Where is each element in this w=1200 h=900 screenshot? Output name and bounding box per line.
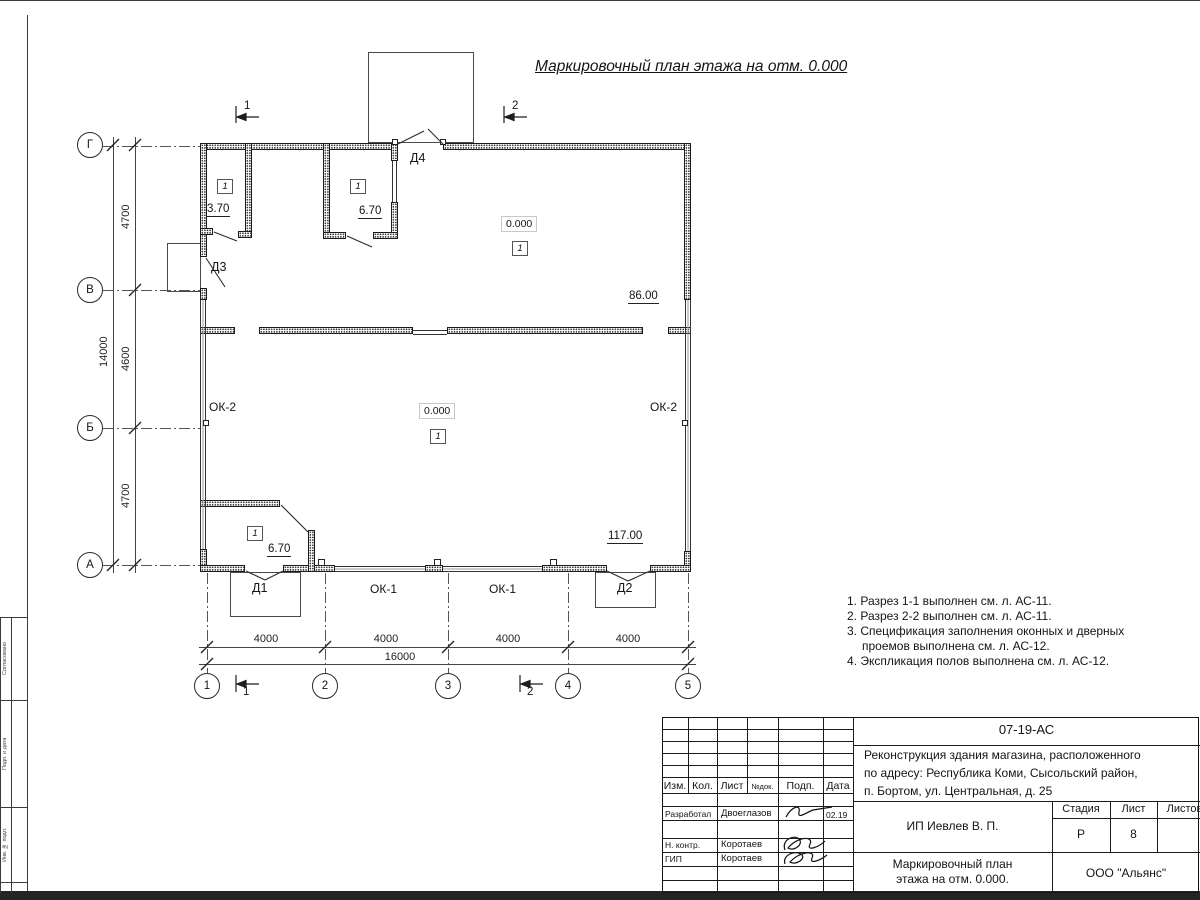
door-label-d2: Д2 — [617, 581, 632, 595]
dim-16000: 16000 — [375, 651, 425, 663]
sheets-label: Листов — [1157, 803, 1200, 815]
axis-line-1 — [207, 573, 208, 673]
stage-value: Р — [1052, 827, 1110, 841]
wall-left-upper — [200, 143, 207, 257]
note-item: 2. Разрез 2-2 выполнен см. л. АС-11. — [847, 609, 1147, 624]
row-ncontr-role: Н. контр. — [665, 840, 700, 850]
window-ok1-a — [335, 566, 425, 572]
jamb-tick — [434, 559, 441, 566]
notes-list: 1. Разрез 1-1 выполнен см. л. АС-11. 2. … — [847, 594, 1147, 669]
axis-line-5 — [688, 573, 689, 673]
wall-bottom-4 — [542, 565, 607, 572]
stage-label: Стадия — [1052, 803, 1110, 815]
jamb-tick — [440, 139, 446, 145]
axis-bubble-4: 4 — [555, 673, 581, 699]
titleblock-line — [662, 741, 853, 742]
dim-line-v-inner — [135, 137, 136, 573]
project-name-line3: п. Бортом, ул. Центральная, д. 25 — [864, 784, 1052, 798]
wall-room1-bottom-l — [200, 228, 213, 235]
project-name-line2: по адресу: Республика Коми, Сысольский р… — [864, 766, 1138, 780]
wall-mid-2 — [447, 327, 643, 334]
sheet-left-border — [27, 15, 28, 893]
axis-line-v — [103, 290, 200, 291]
col-list: Лист — [717, 780, 747, 792]
window-label-ok2-right: ОК-2 — [650, 400, 677, 414]
window-label-ok1-a: ОК-1 — [370, 582, 397, 596]
page-title: Маркировочный план этажа на отм. 0.000 — [535, 58, 840, 76]
axis-line-b — [103, 428, 200, 429]
axis-bubble-b: Б — [77, 415, 103, 441]
axis-bubble-2: 2 — [312, 673, 338, 699]
door-label-d1: Д1 — [252, 581, 267, 595]
titleblock-line — [662, 765, 853, 766]
wall-room1-right — [245, 143, 252, 238]
axis-bubble-a: А — [77, 552, 103, 578]
floor-type-mark: 1 — [217, 179, 233, 194]
window-label-ok2-left: ОК-2 — [209, 400, 236, 414]
dim-4700-bottom: 4700 — [120, 468, 132, 524]
col-ndok: №док. — [747, 782, 778, 791]
note-item: 4. Экспликация полов выполнена см. л. АС… — [847, 654, 1147, 669]
col-data: Дата — [823, 780, 853, 792]
titleblock-line — [662, 806, 853, 807]
axis-bubble-v: В — [77, 277, 103, 303]
frame-column-line — [0, 807, 27, 808]
section-mark-1-top: 1 — [244, 100, 250, 112]
titleblock-line — [662, 777, 853, 778]
frame-column-line — [0, 617, 1, 893]
titleblock-line — [853, 801, 1200, 802]
row-developer-role: Разработал — [665, 809, 711, 819]
dim-14000: 14000 — [98, 317, 110, 387]
note-item: 1. Разрез 1-1 выполнен см. л. АС-11. — [847, 594, 1147, 609]
titleblock-line — [662, 729, 853, 730]
wall-bottom-1 — [200, 565, 245, 572]
axis-bubble-5: 5 — [675, 673, 701, 699]
doc-number: 07-19-АС — [853, 722, 1200, 737]
dim-line-h-inner — [199, 647, 696, 648]
org-name: ООО "Альянс" — [1052, 866, 1200, 880]
jamb-tick — [682, 420, 688, 426]
sheet-number: 8 — [1110, 827, 1157, 841]
wall-right-upper — [684, 143, 691, 300]
col-izm: Изм. — [662, 780, 688, 792]
dim-4700-top: 4700 — [120, 189, 132, 245]
room-area-670-top: 6.70 — [358, 205, 382, 219]
sheet-label: Лист — [1110, 803, 1157, 815]
room-area-670-bottom: 6.70 — [267, 543, 291, 557]
section-mark-2-bottom: 2 — [527, 686, 533, 698]
floor-type-mark: 1 — [247, 526, 263, 541]
wall-room2-right-up — [391, 143, 398, 161]
opening-threshold — [413, 330, 447, 335]
frame-column-line — [0, 700, 27, 701]
wall-room1-bottom-r — [238, 231, 252, 238]
dim-4000-3: 4000 — [488, 633, 528, 645]
row-gip-role: ГИП — [665, 854, 682, 864]
frame-column-line — [11, 617, 12, 893]
frame-column-line — [0, 617, 27, 618]
titleblock-line — [853, 745, 1200, 746]
drawing-title-line2: этажа на отм. 0.000. — [853, 872, 1052, 886]
titleblock-line — [662, 866, 853, 867]
sheet-top-border — [0, 0, 1200, 1]
wall-room3-stub — [308, 530, 315, 572]
wall-bottom-5 — [650, 565, 691, 572]
titleblock-line — [853, 852, 1200, 853]
wall-room2-bottom-r — [373, 232, 398, 239]
window-ok1-b — [443, 566, 542, 572]
dim-4600: 4600 — [120, 331, 132, 387]
axis-line-4 — [568, 573, 569, 673]
frame-label-inv-podl: Инв. № подл. — [2, 810, 8, 879]
wall-bottom-3 — [425, 565, 443, 572]
floor-type-mark: 1 — [430, 429, 446, 444]
axis-bubble-g: Г — [77, 132, 103, 158]
porch-left — [167, 243, 201, 292]
elevation-mark-top: 0.000 — [501, 216, 537, 232]
elevation-mark-bottom: 0.000 — [419, 403, 455, 419]
titleblock-line — [662, 820, 853, 821]
axis-line-3 — [448, 573, 449, 673]
project-name-line1: Реконструкция здания магазина, расположе… — [864, 748, 1141, 762]
window-room2 — [392, 161, 397, 202]
client-name: ИП Иевлев В. П. — [853, 819, 1052, 833]
drawing-sheet: Согласовано Подп. и дата Инв. № подл. Ма… — [0, 0, 1200, 900]
dim-4000-2: 4000 — [366, 633, 406, 645]
room-area-86: 86.00 — [628, 290, 659, 304]
titleblock-line — [662, 880, 853, 881]
section-mark-2-top: 2 — [512, 100, 518, 112]
window-label-ok1-b: ОК-1 — [489, 582, 516, 596]
floor-type-mark: 1 — [350, 179, 366, 194]
drawing-title-line1: Маркировочный план — [853, 857, 1052, 871]
row-gip-name: Коротаев — [721, 853, 762, 864]
dim-line-h-outer — [199, 664, 696, 665]
titleblock-line — [662, 753, 853, 754]
note-item: 3. Спецификация заполнения оконных и две… — [847, 624, 1147, 653]
floor-type-mark: 1 — [512, 241, 528, 256]
wall-top-left — [200, 143, 398, 150]
wall-room2-bottom-l — [323, 232, 346, 239]
jamb-tick — [203, 420, 209, 426]
section-mark-1-bottom: 1 — [243, 686, 249, 698]
frame-label-soglasovano: Согласовано — [2, 620, 8, 697]
axis-bubble-1: 1 — [194, 673, 220, 699]
col-podp: Подп. — [778, 780, 823, 792]
dim-4000-1: 4000 — [246, 633, 286, 645]
row-developer-name: Двоеглазов — [721, 808, 772, 819]
jamb-tick — [318, 559, 325, 566]
titleblock-line — [662, 793, 853, 794]
row-developer-date: 02.19 — [826, 810, 847, 820]
room-area-370: 3.70 — [206, 203, 230, 217]
wall-room3-top — [200, 500, 280, 507]
dim-line-v-outer — [113, 137, 114, 573]
door-label-d4: Д4 — [410, 151, 425, 165]
door-label-d3: Д3 — [211, 260, 226, 274]
dim-4000-4: 4000 — [608, 633, 648, 645]
frame-label-podp-data: Подп. и дата — [2, 703, 8, 804]
wall-room2-left — [323, 143, 330, 239]
jamb-tick — [392, 139, 398, 145]
wall-mid-1 — [259, 327, 413, 334]
porch-top — [368, 52, 474, 143]
frame-column-line — [0, 882, 27, 883]
axis-line-g — [103, 146, 200, 147]
jamb-tick — [550, 559, 557, 566]
row-ncontr-name: Коротаев — [721, 839, 762, 850]
axis-line-a — [103, 565, 200, 566]
titleblock-line — [1052, 818, 1200, 819]
axis-bubble-3: 3 — [435, 673, 461, 699]
room-area-117: 117.00 — [607, 530, 643, 544]
wall-top-right — [443, 143, 691, 150]
axis-line-2 — [325, 573, 326, 673]
wall-left-jamb — [200, 288, 207, 300]
col-kol: Кол. — [688, 780, 717, 792]
